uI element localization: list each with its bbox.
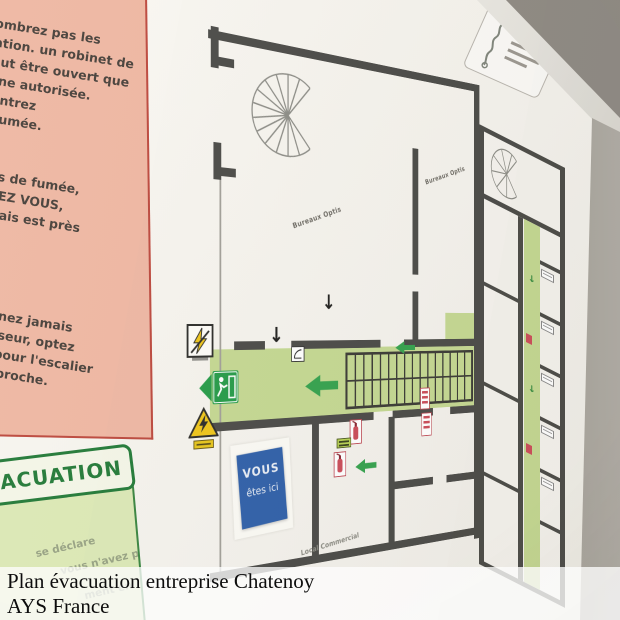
wall bbox=[234, 341, 265, 350]
instruction-paragraph: n cas de fumée, AISSEZ VOUS, air frais e… bbox=[0, 162, 119, 261]
emergency-exit-sign bbox=[199, 370, 238, 405]
down-arrow-icon: ↓ bbox=[269, 326, 284, 347]
wall bbox=[540, 520, 560, 534]
staircase bbox=[345, 350, 473, 410]
you-are-here-marker: VOUS êtes ici bbox=[236, 447, 287, 530]
room-tag bbox=[541, 373, 554, 388]
instruction-paragraph: combrez pas les uation. un robinet de pe… bbox=[0, 12, 138, 149]
wall bbox=[291, 340, 380, 349]
fire-equipment-label bbox=[420, 387, 430, 409]
wall bbox=[450, 405, 474, 414]
evacuation-plan-photo: * combrez pas les uation. un robinet de … bbox=[0, 0, 620, 620]
floor-plan-main: Bureaux Optis Bureaux Optis bbox=[183, 0, 493, 620]
caption-bar: Plan évacuation entreprise Chatenoy AYS … bbox=[0, 567, 620, 620]
room-tag bbox=[541, 269, 554, 284]
wall bbox=[412, 148, 418, 275]
spiral-staircase-icon bbox=[244, 63, 322, 166]
room-tag bbox=[541, 477, 554, 492]
instructions-text: combrez pas les uation. un robinet de pe… bbox=[0, 12, 138, 421]
stair-rail bbox=[348, 375, 472, 382]
exit-arrow-left-icon bbox=[199, 374, 211, 402]
evacuation-text-fragment: se déclare bbox=[34, 535, 96, 560]
wall bbox=[484, 282, 518, 303]
fire-equipment-label bbox=[421, 412, 431, 436]
caption-title: Plan évacuation entreprise Chatenoy bbox=[7, 569, 620, 594]
down-arrow-icon: ↓ bbox=[322, 293, 336, 313]
exit-running-man-icon bbox=[213, 370, 239, 404]
you-are-here-line2: êtes ici bbox=[239, 479, 285, 501]
wall bbox=[484, 472, 518, 493]
wall bbox=[484, 382, 518, 403]
fire-extinguisher-icon bbox=[350, 419, 362, 445]
wall bbox=[219, 57, 234, 69]
exit-label-tag bbox=[337, 437, 351, 448]
wall bbox=[213, 142, 221, 180]
wall bbox=[221, 167, 236, 177]
wall bbox=[211, 26, 219, 69]
floor-plan-right-wing: ↓ ↓ bbox=[479, 124, 565, 608]
room-tag bbox=[541, 425, 554, 440]
photo-of-sign: * combrez pas les uation. un robinet de … bbox=[0, 0, 620, 620]
evacuation-arrow-left-icon bbox=[355, 458, 376, 474]
wall bbox=[312, 422, 319, 559]
wall bbox=[394, 477, 433, 490]
caption-subtitle: AYS France bbox=[7, 594, 620, 619]
room-tag bbox=[541, 321, 554, 336]
fire-extinguisher-icon bbox=[334, 450, 346, 478]
wall bbox=[447, 472, 475, 483]
room-label: Bureaux Optis bbox=[292, 205, 342, 230]
room-label: Bureaux Optis bbox=[424, 165, 465, 186]
asterisk-icon: * bbox=[97, 0, 111, 11]
wall bbox=[518, 216, 523, 582]
electrical-cutoff-icon bbox=[187, 324, 214, 362]
instructions-panel: * combrez pas les uation. un robinet de … bbox=[0, 0, 153, 440]
warning-triangle-icon bbox=[188, 406, 218, 452]
safety-sign-icon bbox=[291, 346, 304, 362]
instruction-paragraph: Ne prenez jamais l'ascenseur, optez plut… bbox=[0, 299, 102, 398]
